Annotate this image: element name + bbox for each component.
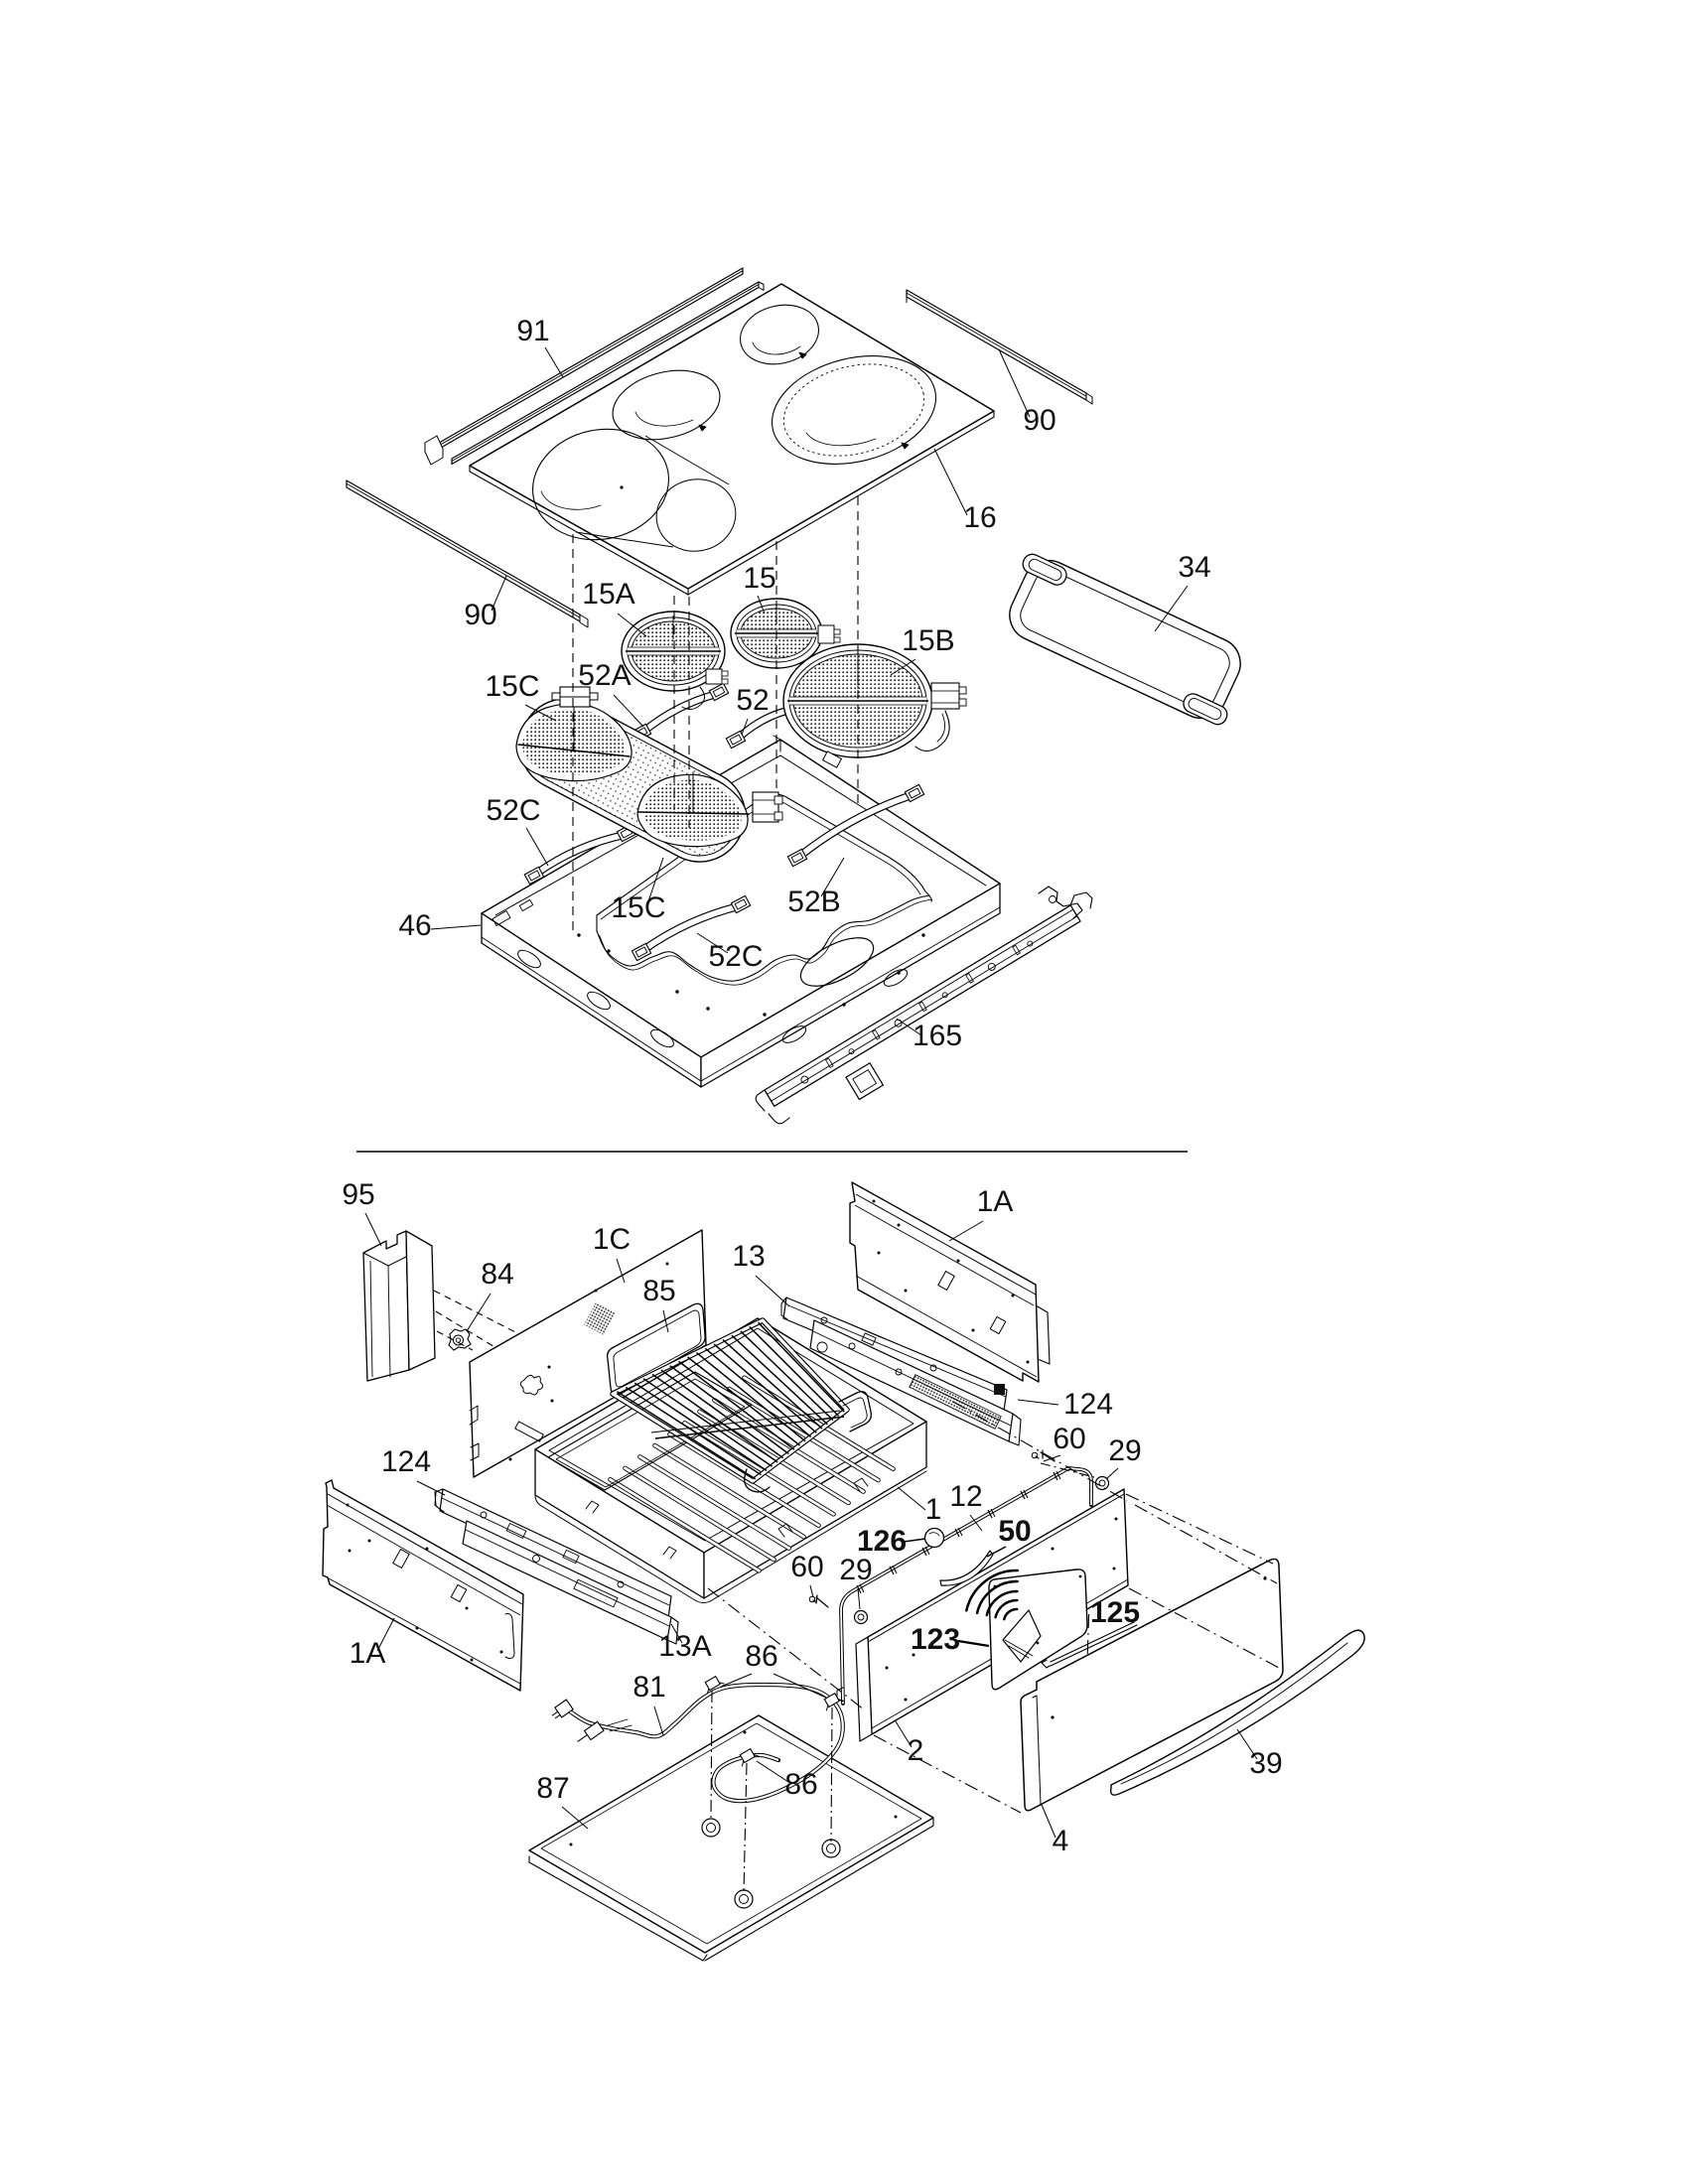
svg-text:85: 85: [642, 1275, 675, 1307]
svg-text:86: 86: [784, 1768, 817, 1801]
svg-text:124: 124: [381, 1445, 431, 1478]
svg-text:15: 15: [743, 562, 775, 595]
svg-text:52B: 52B: [787, 886, 840, 918]
svg-text:12: 12: [949, 1480, 982, 1513]
svg-text:13A: 13A: [658, 1630, 711, 1663]
svg-text:90: 90: [464, 599, 496, 631]
svg-text:1A: 1A: [977, 1185, 1014, 1218]
svg-text:15B: 15B: [902, 624, 954, 657]
svg-text:91: 91: [516, 315, 549, 347]
svg-text:86: 86: [745, 1640, 777, 1673]
svg-text:125: 125: [1090, 1596, 1140, 1629]
svg-text:52C: 52C: [486, 794, 540, 827]
svg-text:39: 39: [1249, 1747, 1282, 1780]
svg-text:15C: 15C: [611, 891, 665, 924]
svg-text:81: 81: [633, 1671, 665, 1704]
svg-text:29: 29: [839, 1554, 872, 1586]
svg-text:90: 90: [1023, 404, 1055, 437]
svg-text:84: 84: [481, 1258, 513, 1291]
svg-text:1A: 1A: [350, 1637, 386, 1670]
svg-text:16: 16: [963, 501, 996, 534]
svg-text:15C: 15C: [485, 670, 539, 703]
svg-text:50: 50: [998, 1515, 1031, 1548]
svg-text:60: 60: [790, 1551, 823, 1583]
svg-text:52: 52: [736, 684, 769, 717]
svg-text:34: 34: [1178, 551, 1210, 584]
svg-text:15A: 15A: [582, 578, 634, 611]
svg-text:52A: 52A: [578, 659, 631, 692]
svg-text:123: 123: [911, 1623, 960, 1656]
svg-text:52C: 52C: [708, 940, 763, 973]
svg-text:29: 29: [1108, 1434, 1141, 1467]
svg-text:1C: 1C: [593, 1223, 631, 1256]
svg-text:46: 46: [398, 909, 431, 942]
svg-text:1: 1: [925, 1493, 942, 1526]
svg-text:95: 95: [342, 1178, 374, 1211]
svg-text:165: 165: [913, 1020, 962, 1052]
svg-text:60: 60: [1053, 1423, 1085, 1455]
svg-text:124: 124: [1063, 1388, 1113, 1421]
svg-text:4: 4: [1053, 1825, 1069, 1857]
svg-text:87: 87: [536, 1772, 569, 1805]
svg-text:2: 2: [908, 1734, 924, 1767]
svg-text:13: 13: [732, 1240, 765, 1273]
